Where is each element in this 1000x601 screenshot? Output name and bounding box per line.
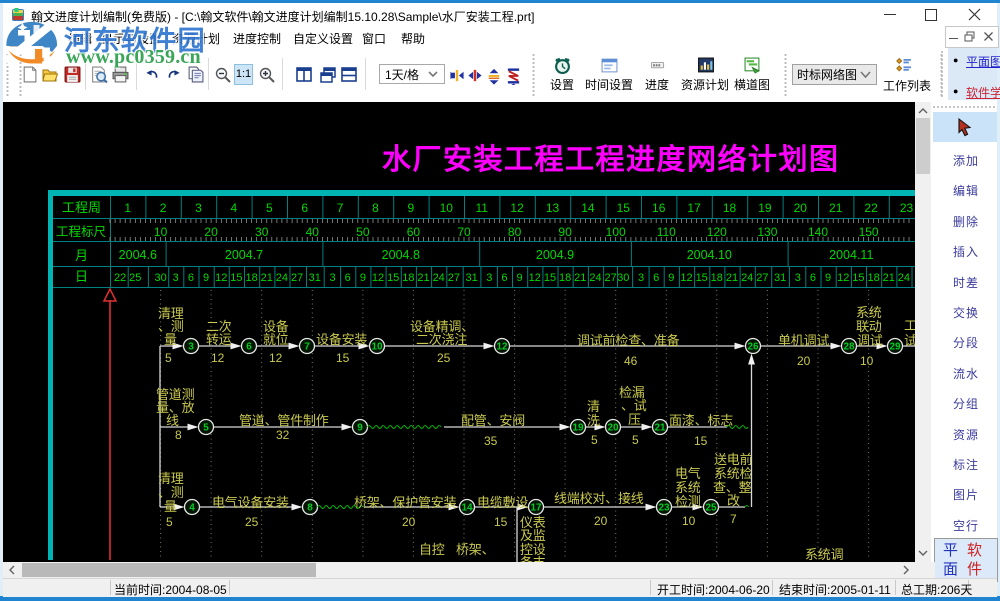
- svg-text:110: 110: [657, 225, 676, 239]
- svg-text:备支: 备支: [520, 555, 546, 562]
- svg-text:日: 日: [75, 269, 88, 284]
- svg-text:9: 9: [360, 272, 366, 284]
- svg-text:27: 27: [291, 272, 303, 284]
- svg-text:月: 月: [75, 248, 88, 263]
- svg-text:、测: 、测: [158, 485, 184, 500]
- svg-text:90: 90: [558, 225, 572, 239]
- svg-text:7: 7: [304, 342, 310, 353]
- svg-text:5: 5: [266, 201, 273, 215]
- svg-text:12: 12: [837, 272, 849, 284]
- svg-text:水厂安装工程工程进度网络计划图: 水厂安装工程工程进度网络计划图: [382, 142, 840, 176]
- svg-text:31: 31: [309, 272, 321, 284]
- svg-text:9: 9: [668, 272, 674, 284]
- svg-text:洗: 洗: [587, 413, 600, 428]
- svg-text:10: 10: [682, 514, 696, 528]
- svg-text:4: 4: [189, 503, 195, 514]
- svg-text:7: 7: [730, 512, 737, 526]
- svg-text:140: 140: [808, 225, 828, 239]
- svg-text:20: 20: [797, 354, 811, 368]
- svg-text:清: 清: [587, 399, 600, 414]
- svg-text:32: 32: [276, 428, 290, 442]
- svg-text:系统: 系统: [675, 480, 701, 495]
- svg-text:17: 17: [530, 503, 542, 514]
- svg-text:12: 12: [510, 201, 524, 215]
- svg-text:6: 6: [810, 272, 816, 284]
- svg-text:9: 9: [825, 272, 831, 284]
- svg-text:、试: 、试: [621, 398, 647, 413]
- svg-text:9: 9: [408, 201, 415, 215]
- svg-text:14: 14: [581, 201, 595, 215]
- svg-text:2004.9: 2004.9: [536, 248, 574, 262]
- svg-text:20: 20: [204, 225, 218, 239]
- svg-text:25: 25: [129, 272, 141, 284]
- svg-text:24: 24: [589, 272, 601, 284]
- svg-text:就位: 就位: [263, 332, 289, 347]
- svg-text:30: 30: [617, 272, 629, 284]
- svg-text:配管、安阀: 配管、安阀: [461, 413, 525, 428]
- svg-text:2004.6: 2004.6: [119, 248, 157, 262]
- svg-text:28: 28: [843, 342, 855, 353]
- svg-text:25: 25: [705, 503, 717, 514]
- svg-text:调试: 调试: [857, 333, 883, 348]
- svg-text:面漆、标志: 面漆、标志: [669, 413, 733, 428]
- svg-text:9: 9: [517, 272, 523, 284]
- svg-text:18: 18: [867, 272, 879, 284]
- svg-text:电缆敷设: 电缆敷设: [477, 495, 528, 510]
- svg-text:70: 70: [457, 225, 471, 239]
- svg-text:21: 21: [417, 272, 429, 284]
- svg-text:15: 15: [387, 272, 399, 284]
- svg-text:5: 5: [166, 515, 173, 529]
- svg-text:2004.11: 2004.11: [829, 248, 873, 262]
- svg-text:30: 30: [154, 272, 166, 284]
- svg-text:20: 20: [607, 423, 619, 434]
- svg-text:量: 量: [164, 332, 177, 347]
- svg-text:5: 5: [203, 423, 209, 434]
- svg-text:12: 12: [269, 351, 283, 365]
- svg-text:桥架、: 桥架、: [456, 542, 494, 557]
- svg-text:量: 量: [164, 499, 177, 514]
- svg-text:27: 27: [604, 272, 616, 284]
- svg-text:15: 15: [694, 434, 708, 448]
- svg-text:4: 4: [231, 201, 238, 215]
- svg-text:3: 3: [329, 272, 335, 284]
- svg-text:5: 5: [632, 433, 639, 447]
- svg-text:6: 6: [246, 342, 252, 353]
- svg-text:9: 9: [357, 423, 363, 434]
- svg-text:自控: 自控: [419, 542, 445, 557]
- svg-text:15: 15: [852, 272, 864, 284]
- svg-text:3: 3: [173, 272, 179, 284]
- svg-text:80: 80: [508, 225, 522, 239]
- svg-text:5: 5: [165, 351, 172, 365]
- svg-text:6: 6: [188, 272, 194, 284]
- svg-text:35: 35: [484, 434, 498, 448]
- svg-text:31: 31: [465, 272, 477, 284]
- svg-text:18: 18: [711, 272, 723, 284]
- svg-text:试: 试: [904, 333, 915, 348]
- svg-text:送电前: 送电前: [714, 452, 753, 467]
- svg-text:10: 10: [860, 354, 874, 368]
- svg-text:设备安装: 设备安装: [316, 332, 367, 347]
- svg-text:22: 22: [114, 272, 126, 284]
- svg-text:21: 21: [261, 272, 273, 284]
- svg-text:21: 21: [574, 272, 586, 284]
- svg-text:15: 15: [336, 351, 350, 365]
- svg-text:130: 130: [757, 225, 777, 239]
- svg-text:9: 9: [203, 272, 209, 284]
- svg-text:21: 21: [654, 423, 666, 434]
- svg-text:检测: 检测: [675, 494, 701, 509]
- svg-text:线: 线: [166, 413, 179, 428]
- svg-text:6: 6: [501, 272, 507, 284]
- svg-text:工程周: 工程周: [62, 200, 101, 215]
- svg-text:21: 21: [726, 272, 738, 284]
- svg-text:15: 15: [696, 272, 708, 284]
- svg-text:工程标尺: 工程标尺: [56, 224, 106, 239]
- svg-text:18: 18: [559, 272, 571, 284]
- svg-text:21: 21: [829, 201, 843, 215]
- svg-text:工: 工: [904, 318, 915, 333]
- svg-text:系统: 系统: [856, 305, 882, 320]
- svg-text:电气: 电气: [675, 466, 701, 481]
- svg-text:线端校对、接线: 线端校对、接线: [554, 491, 644, 506]
- svg-text:系统检: 系统检: [714, 466, 753, 481]
- svg-text:12: 12: [372, 272, 384, 284]
- svg-text:15: 15: [494, 515, 508, 529]
- svg-text:46: 46: [624, 354, 638, 368]
- svg-text:11: 11: [475, 201, 488, 215]
- svg-text:3: 3: [195, 201, 202, 215]
- svg-text:21: 21: [883, 272, 895, 284]
- svg-text:改: 改: [727, 493, 740, 508]
- svg-text:6: 6: [301, 201, 308, 215]
- svg-text:17: 17: [687, 201, 701, 215]
- svg-text:及监: 及监: [520, 528, 546, 543]
- svg-text:2004.7: 2004.7: [225, 248, 263, 262]
- svg-text:调试前检查、准备: 调试前检查、准备: [577, 333, 680, 348]
- svg-text:18: 18: [723, 201, 737, 215]
- svg-text:8: 8: [307, 503, 313, 514]
- svg-text:40: 40: [306, 225, 320, 239]
- svg-text:24: 24: [898, 272, 910, 284]
- svg-text:电气设备安装: 电气设备安装: [212, 495, 289, 510]
- svg-text:120: 120: [707, 225, 727, 239]
- svg-text:2004.10: 2004.10: [687, 248, 732, 262]
- svg-text:15: 15: [544, 272, 556, 284]
- svg-text:8: 8: [372, 201, 379, 215]
- svg-text:150: 150: [859, 225, 879, 239]
- svg-text:12: 12: [529, 272, 541, 284]
- svg-text:12: 12: [496, 342, 508, 353]
- svg-text:10: 10: [154, 225, 168, 239]
- svg-text:20: 20: [402, 515, 416, 529]
- svg-text:60: 60: [407, 225, 421, 239]
- svg-text:27: 27: [756, 272, 768, 284]
- svg-text:3: 3: [638, 272, 644, 284]
- svg-text:清理: 清理: [158, 471, 184, 486]
- svg-text:系统调: 系统调: [805, 547, 843, 562]
- svg-text:23: 23: [900, 201, 914, 215]
- svg-text:二次浇注: 二次浇注: [416, 332, 467, 347]
- svg-text:19: 19: [572, 423, 584, 434]
- svg-text:29: 29: [889, 342, 901, 353]
- svg-text:15: 15: [617, 201, 631, 215]
- svg-text:6: 6: [345, 272, 351, 284]
- svg-text:8: 8: [175, 428, 182, 442]
- svg-text:2004.8: 2004.8: [382, 248, 420, 262]
- svg-text:6: 6: [653, 272, 659, 284]
- svg-text:1: 1: [124, 201, 131, 215]
- svg-text:23: 23: [658, 503, 670, 514]
- svg-text:19: 19: [758, 201, 772, 215]
- svg-text:20: 20: [794, 201, 808, 215]
- svg-text:20: 20: [594, 514, 608, 528]
- svg-text:单机调试: 单机调试: [778, 333, 829, 348]
- svg-text:14: 14: [461, 503, 473, 514]
- svg-text:3: 3: [795, 272, 801, 284]
- svg-text:桥架、保护管安装: 桥架、保护管安装: [354, 495, 457, 510]
- svg-text:转运: 转运: [206, 332, 232, 347]
- svg-text:12: 12: [211, 351, 225, 365]
- svg-text:26: 26: [747, 342, 759, 353]
- svg-text:25: 25: [437, 351, 451, 365]
- svg-text:100: 100: [606, 225, 626, 239]
- svg-text:10: 10: [440, 201, 454, 215]
- svg-text:15: 15: [230, 272, 242, 284]
- svg-text:联动: 联动: [856, 319, 882, 334]
- svg-text:3: 3: [486, 272, 492, 284]
- svg-text:18: 18: [402, 272, 414, 284]
- svg-text:12: 12: [215, 272, 227, 284]
- svg-text:12: 12: [680, 272, 692, 284]
- svg-text:24: 24: [276, 272, 288, 284]
- svg-text:7: 7: [337, 201, 344, 215]
- svg-text:13: 13: [546, 201, 560, 215]
- svg-text:16: 16: [652, 201, 666, 215]
- svg-text:2: 2: [160, 201, 167, 215]
- svg-text:31: 31: [774, 272, 786, 284]
- svg-text:24: 24: [433, 272, 445, 284]
- svg-text:25: 25: [245, 515, 259, 529]
- svg-text:50: 50: [356, 225, 370, 239]
- svg-text:压: 压: [628, 412, 641, 427]
- svg-text:18: 18: [245, 272, 257, 284]
- svg-text:24: 24: [741, 272, 753, 284]
- svg-text:管道、管件制作: 管道、管件制作: [239, 413, 329, 428]
- svg-text:30: 30: [255, 225, 269, 239]
- svg-text:10: 10: [371, 342, 383, 353]
- svg-text:5: 5: [591, 433, 598, 447]
- svg-text:3: 3: [188, 342, 194, 353]
- svg-text:27: 27: [448, 272, 460, 284]
- svg-text:22: 22: [864, 201, 878, 215]
